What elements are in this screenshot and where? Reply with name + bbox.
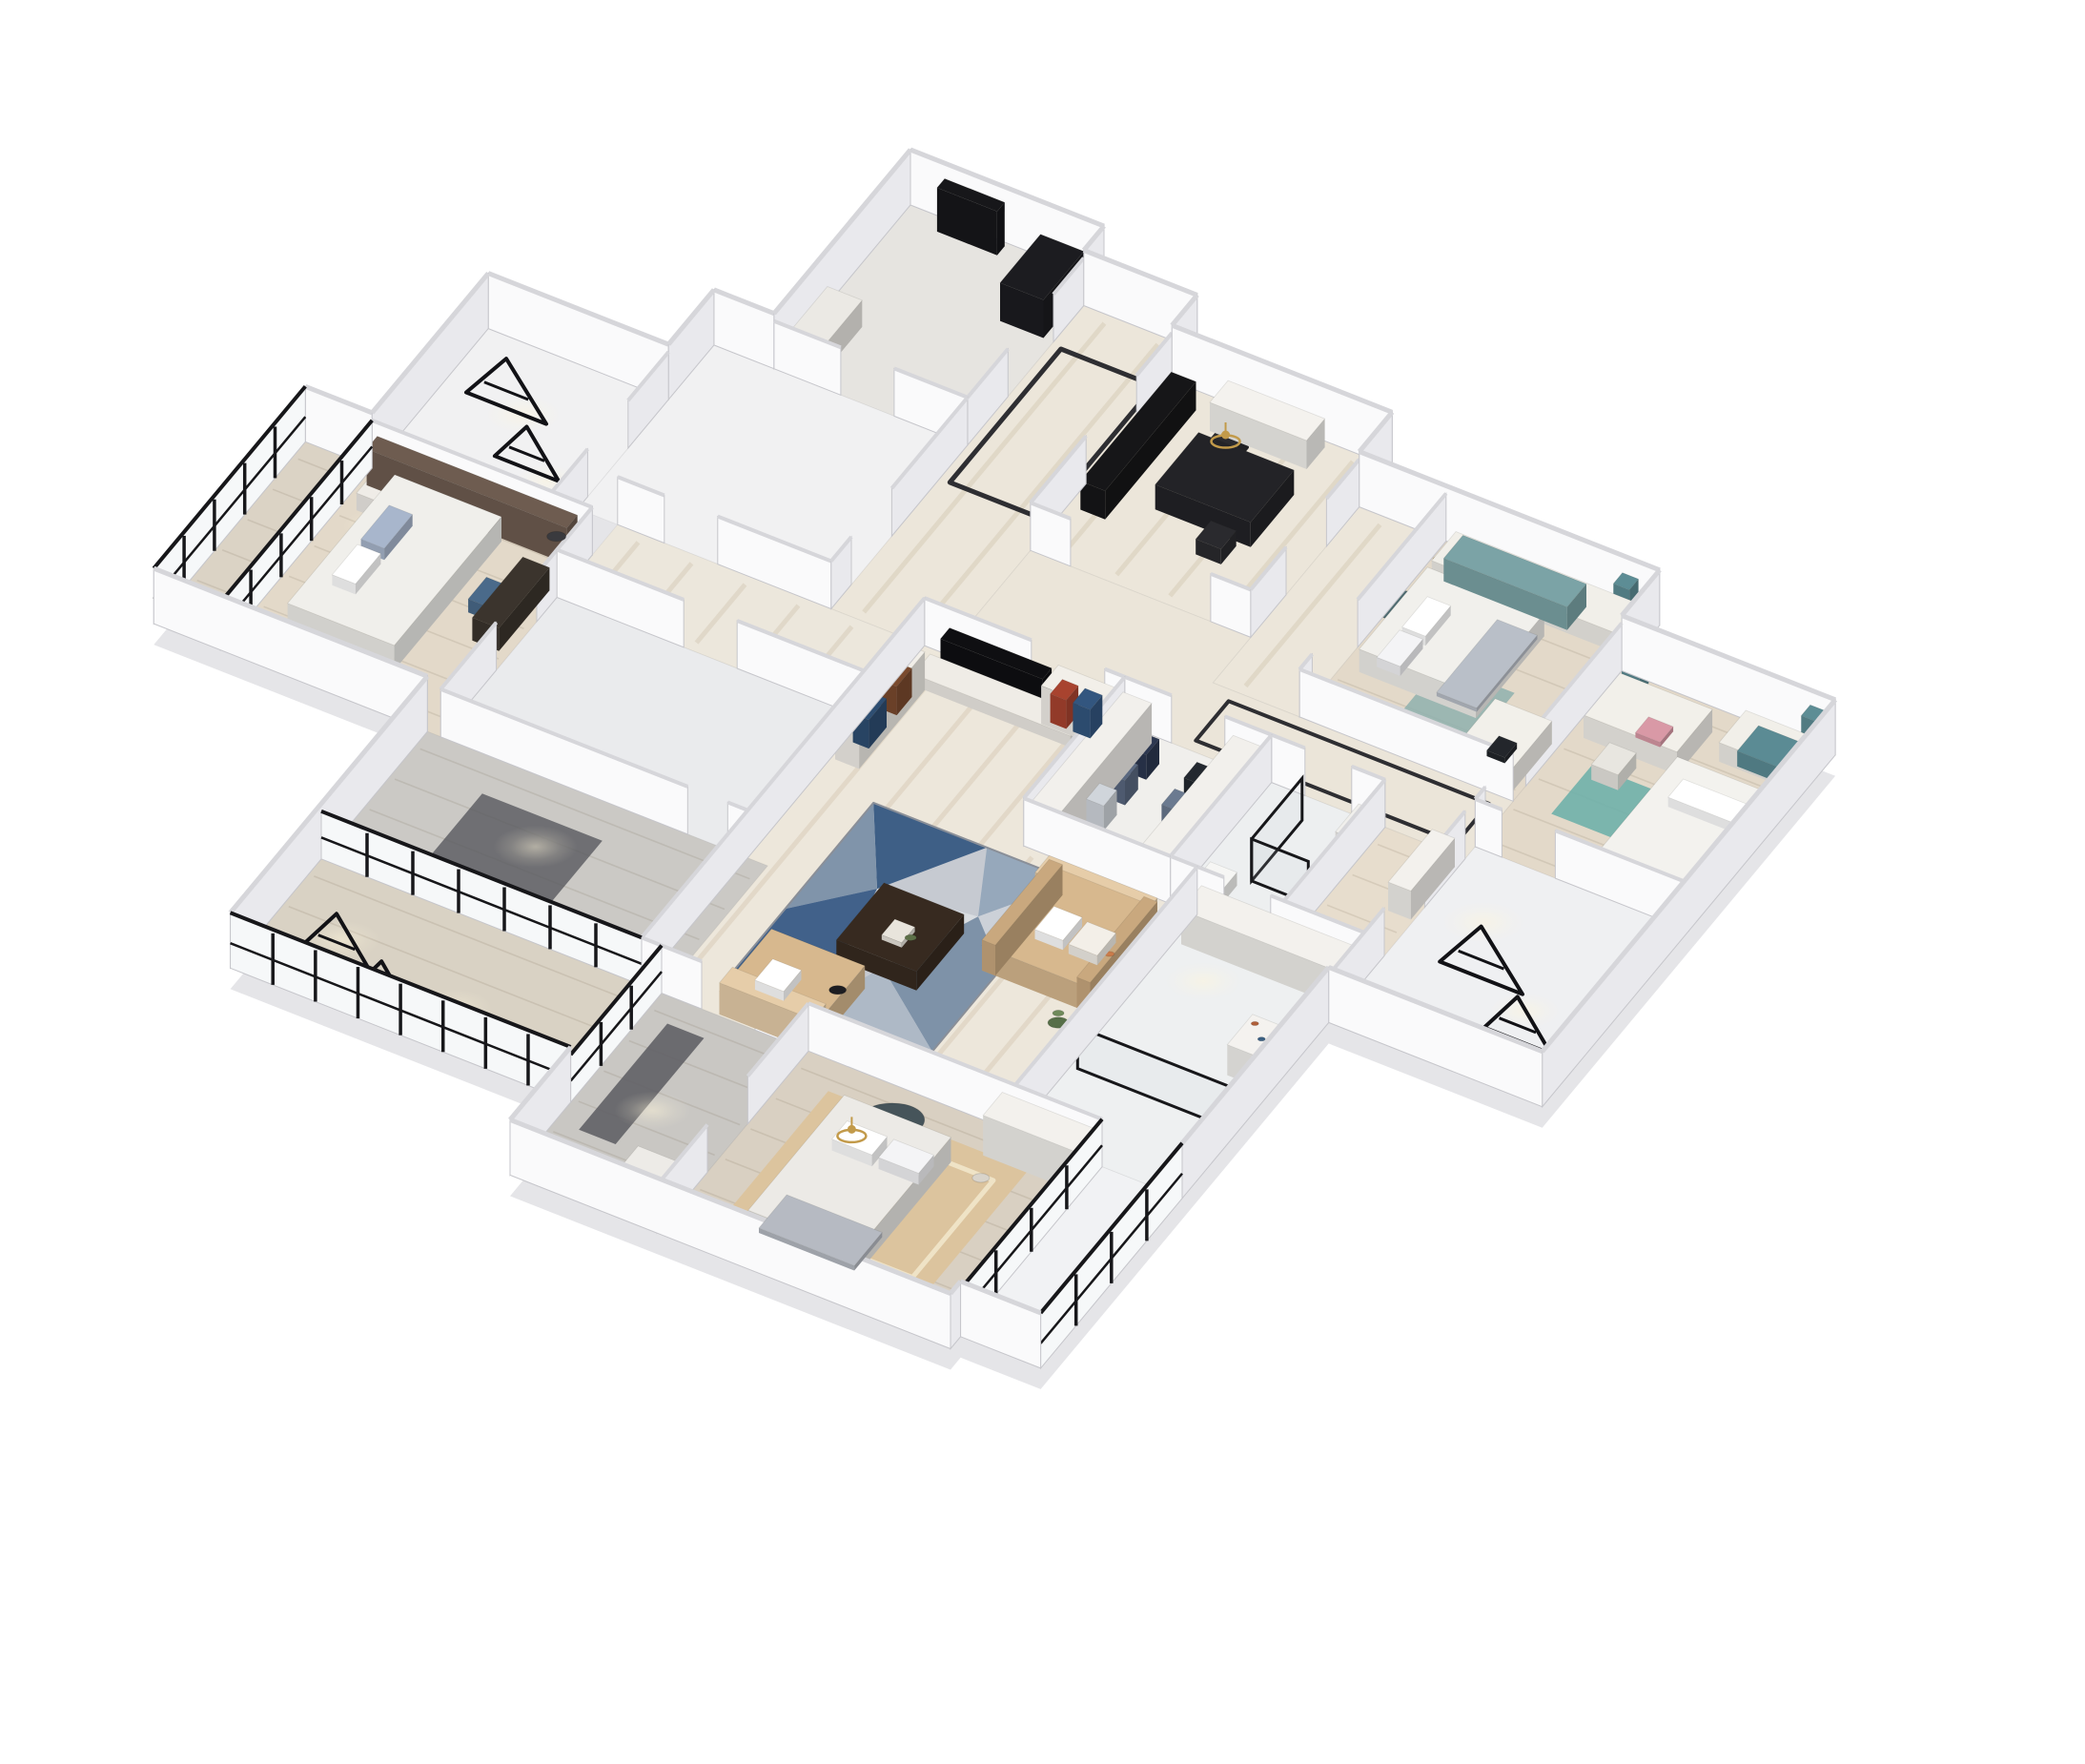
wall-mirror bbox=[547, 531, 566, 541]
floorplan-svg bbox=[0, 0, 2085, 1764]
floorplan-3d-render bbox=[0, 0, 2085, 1764]
ceiling-glow bbox=[494, 826, 578, 868]
stool bbox=[972, 1174, 990, 1182]
table-plant bbox=[905, 934, 916, 940]
plant-top bbox=[1053, 1010, 1064, 1015]
ceiling-glow bbox=[1165, 962, 1241, 1000]
bottle bbox=[1257, 1037, 1265, 1041]
ceiling-glow bbox=[615, 1092, 691, 1130]
floor-lamp-black bbox=[829, 986, 847, 995]
sofa-arm-side bbox=[982, 940, 995, 976]
bottle bbox=[1251, 1021, 1258, 1025]
ceiling-glow bbox=[1441, 901, 1525, 943]
